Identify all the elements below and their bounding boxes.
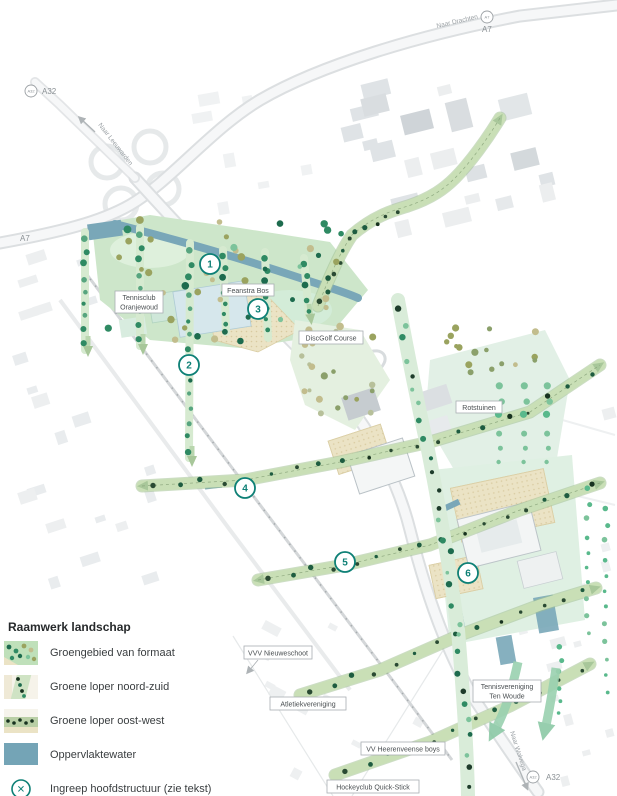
svg-text:Rotstuinen: Rotstuinen — [462, 405, 496, 412]
label-a7-west: A7 — [20, 234, 30, 243]
svg-text:Hockeyclub Quick-Stick: Hockeyclub Quick-Stick — [336, 785, 410, 792]
svg-text:4: 4 — [242, 484, 248, 495]
map-label-vv-heerenveense-boys: VV Heerenveense boys — [361, 742, 445, 755]
legend-item-label: Groene loper oost-west — [50, 715, 164, 727]
legend-item-label: Ingreep hoofdstructuur (zie tekst) — [50, 783, 211, 795]
map-label-rotstuinen: Rotstuinen — [456, 401, 502, 413]
svg-text:VVV Nieuweschoot: VVV Nieuweschoot — [248, 651, 308, 658]
svg-text:A32: A32 — [529, 775, 537, 780]
map-label-atletiekvereniging: Atletiekvereniging — [270, 697, 346, 710]
svg-text:Ten Woude: Ten Woude — [489, 694, 524, 701]
svg-text:6: 6 — [465, 569, 471, 580]
marker-3: 3 — [248, 299, 268, 319]
svg-text:Atletiekvereniging: Atletiekvereniging — [280, 702, 335, 709]
legend-item-groengebied: Groengebied van formaat — [4, 640, 232, 666]
svg-text:VV Heerenveense boys: VV Heerenveense boys — [366, 747, 440, 754]
water-swatch — [4, 743, 38, 767]
svg-text:A32: A32 — [546, 773, 561, 782]
svg-text:Tennisvereniging: Tennisvereniging — [481, 684, 534, 691]
svg-text:A32: A32 — [42, 87, 57, 96]
marker-4: 4 — [235, 478, 255, 498]
legend-item-loper-noord-zuid: Groene loper noord-zuid — [4, 674, 232, 700]
green-corridor-ew-swatch — [4, 709, 38, 733]
svg-text:✕: ✕ — [17, 785, 25, 796]
legend-item-oppervlaktewater: Oppervlaktewater — [4, 742, 232, 768]
svg-text:Tennisclub: Tennisclub — [122, 295, 155, 302]
legend-item-label: Groengebied van formaat — [50, 647, 175, 659]
svg-text:Feanstra Bos: Feanstra Bos — [227, 288, 269, 295]
map-label-discgolf-course: DiscGolf Course — [299, 331, 363, 344]
legend-panel: Raamwerk landschap Groengebied van forma… — [0, 600, 232, 796]
svg-text:2: 2 — [186, 361, 192, 372]
map-label-tennisvereniging-ten-woude: Tennisvereniging Ten Woude — [473, 680, 541, 702]
svg-text:5: 5 — [342, 558, 348, 569]
svg-text:3: 3 — [255, 305, 261, 316]
map-label-vvv-nieuweschoot: VVV Nieuweschoot — [244, 646, 312, 672]
marker-5: 5 — [335, 552, 355, 572]
marker-6: 6 — [458, 563, 478, 583]
green-area-swatch — [4, 641, 38, 665]
map-label-hockeyclub-quick-stick: Hockeyclub Quick-Stick — [327, 780, 419, 793]
legend-item-label: Groene loper noord-zuid — [50, 681, 169, 693]
map-label-feanstra-bos: Feanstra Bos — [222, 284, 274, 296]
green-corridor-ns-swatch — [4, 675, 38, 699]
marker-1: 1 — [200, 254, 220, 274]
legend-item-loper-oost-west: Groene loper oost-west — [4, 708, 232, 734]
svg-text:1: 1 — [207, 260, 213, 271]
circled-x-icon: ✕ — [4, 777, 38, 796]
legend-item-ingreep: ✕ Ingreep hoofdstructuur (zie tekst) — [4, 776, 232, 796]
svg-text:A7: A7 — [482, 25, 492, 34]
legend-item-label: Oppervlaktewater — [50, 749, 136, 761]
marker-2: 2 — [179, 355, 199, 375]
svg-text:Oranjewoud: Oranjewoud — [120, 305, 158, 312]
motorway-a7 — [0, 5, 617, 243]
svg-text:A7: A7 — [485, 15, 491, 20]
svg-text:A32: A32 — [27, 89, 35, 94]
planning-map-page: 1 2 3 4 5 6 Tennisclub Oranjewoud Feanst… — [0, 0, 617, 796]
svg-text:DiscGolf Course: DiscGolf Course — [306, 336, 357, 343]
map-label-tennisclub-oranjewoud: Tennisclub Oranjewoud — [115, 291, 163, 313]
legend-title: Raamwerk landschap — [0, 600, 232, 640]
